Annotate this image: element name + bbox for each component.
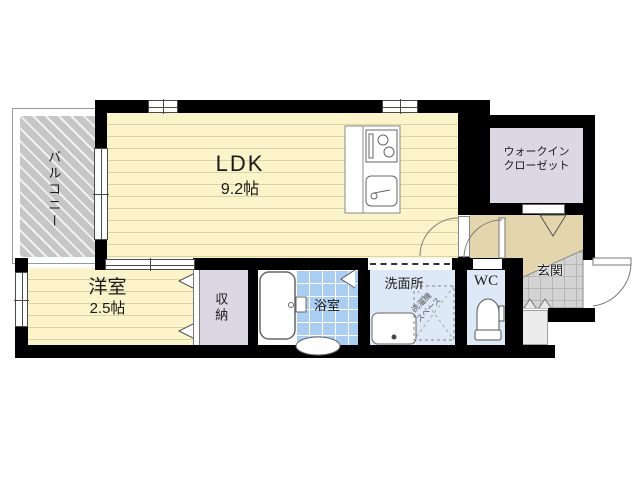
balcony-label: バルコニー bbox=[45, 130, 61, 250]
wc-label: WC bbox=[467, 272, 505, 291]
western-room-size: 2.5帖 bbox=[35, 300, 180, 319]
wall-right-upper bbox=[583, 115, 595, 260]
balcony-window bbox=[94, 148, 108, 240]
walk-in-closet-line2: クローゼット bbox=[490, 160, 583, 174]
window-tick bbox=[400, 99, 401, 114]
entrance-label: 玄関 bbox=[524, 263, 576, 279]
closet-folding-door bbox=[540, 215, 566, 236]
window-tick bbox=[14, 300, 29, 301]
closet-opening bbox=[522, 204, 565, 214]
western-room-name: 洋室 bbox=[35, 276, 180, 300]
floor-plan: バルコニー LDK 9.2帖 ウォークイン クローゼット 洋室 2.5帖 収納 … bbox=[0, 0, 640, 480]
storage-door-strip bbox=[193, 268, 200, 345]
walk-in-closet-line1: ウォークイン bbox=[490, 146, 583, 160]
window-tick bbox=[150, 258, 151, 271]
bathroom-label: 浴室 bbox=[298, 298, 356, 314]
wall-washroom-wc bbox=[455, 258, 467, 345]
sliding-door-ldk-western bbox=[105, 259, 195, 270]
wc-door-leaf bbox=[499, 218, 505, 258]
entrance-door-leaf bbox=[593, 258, 631, 265]
window-tick bbox=[163, 99, 164, 114]
window-tick bbox=[93, 194, 109, 195]
western-room-label: 洋室 2.5帖 bbox=[35, 276, 180, 319]
entrance-step bbox=[521, 310, 548, 345]
wall-bottom bbox=[15, 345, 555, 358]
entrance-door-arc bbox=[593, 263, 631, 306]
wall-ldk-closet bbox=[458, 113, 490, 215]
western-room-window bbox=[15, 272, 28, 327]
washroom-opening-dashes bbox=[370, 263, 450, 265]
entrance-step-marks bbox=[524, 299, 551, 308]
wall-entrance-bottom bbox=[548, 308, 595, 322]
wall-wc-entrance bbox=[505, 262, 523, 345]
washroom-opening bbox=[368, 258, 452, 270]
wall-top-closet bbox=[480, 115, 595, 128]
ldk-door-gap bbox=[458, 216, 470, 257]
walk-in-closet-label: ウォークイン クローゼット bbox=[490, 146, 583, 174]
ldk-size: 9.2帖 bbox=[160, 180, 320, 200]
ldk-name: LDK bbox=[160, 150, 320, 178]
wall-bath-washroom bbox=[358, 258, 370, 345]
storage-label: 収納 bbox=[212, 280, 228, 335]
window-top-left bbox=[148, 100, 178, 113]
wc-door-gap bbox=[473, 259, 502, 269]
window-top-right bbox=[382, 100, 418, 113]
ldk-label: LDK 9.2帖 bbox=[160, 150, 320, 200]
wall-storage-bath bbox=[248, 258, 258, 345]
